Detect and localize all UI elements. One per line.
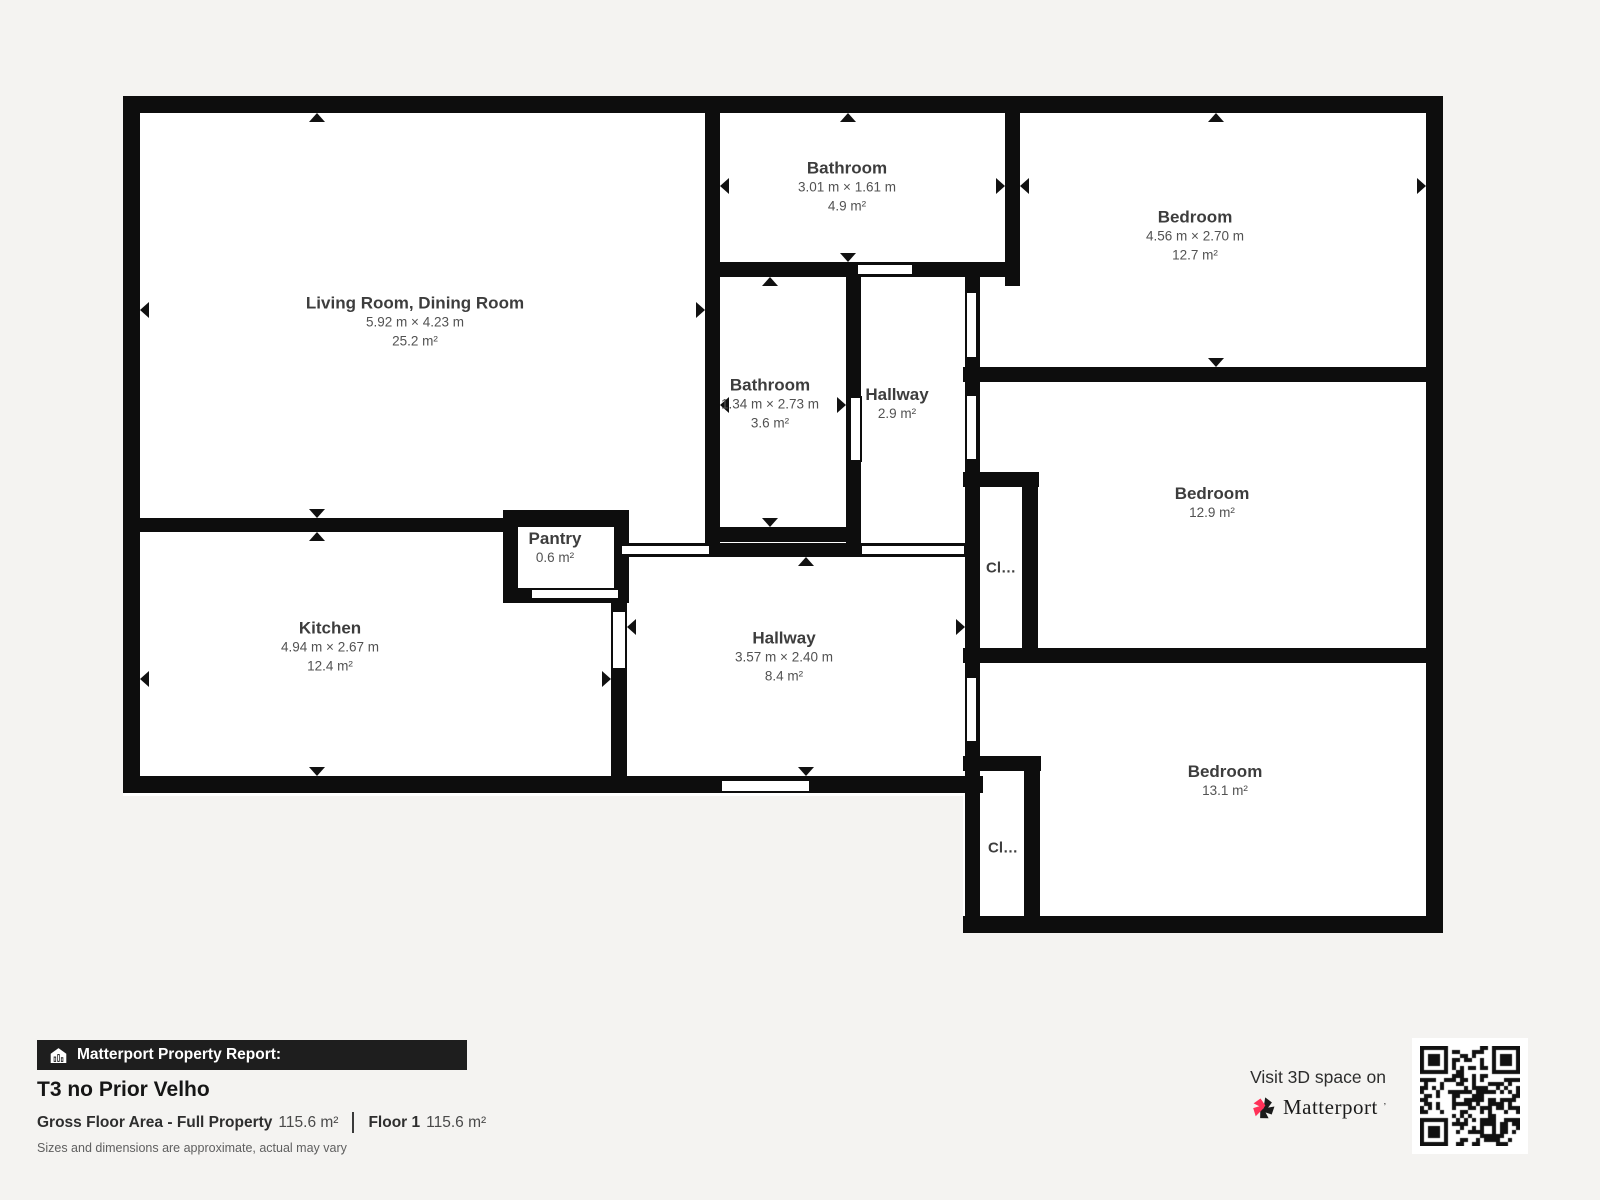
report-bar-title: Matterport Property Report: — [77, 1046, 281, 1064]
measure-arrow — [1417, 178, 1426, 194]
wall — [705, 527, 861, 542]
wall — [123, 96, 1443, 113]
measure-arrow — [602, 671, 611, 687]
room-area: 12.7 m² — [1146, 246, 1244, 265]
room-label-bedroom-top: Bedroom 4.56 m × 2.70 m 12.7 m² — [1146, 208, 1244, 265]
floor-value: 115.6 m² — [426, 1114, 486, 1132]
room-label-bedroom-bottom: Bedroom 13.1 m² — [1188, 762, 1263, 800]
room-area: 8.4 m² — [735, 667, 833, 686]
wall — [123, 518, 505, 532]
measure-arrow — [840, 113, 856, 122]
measure-arrow — [140, 302, 149, 318]
room-area: 4.9 m² — [798, 197, 896, 216]
measure-arrow — [627, 619, 636, 635]
room-area: 25.2 m² — [306, 332, 524, 351]
room-name: Kitchen — [281, 619, 379, 638]
floor-area-summary: Gross Floor Area - Full Property 115.6 m… — [37, 1112, 486, 1133]
room-area: 12.9 m² — [1175, 503, 1250, 522]
door-opening — [620, 544, 711, 556]
room-name: Bathroom — [798, 159, 896, 178]
door-opening — [965, 291, 978, 359]
room-name: Bedroom — [1175, 484, 1250, 503]
measure-arrow — [696, 302, 705, 318]
room-label-living: Living Room, Dining Room 5.92 m × 4.23 m… — [306, 294, 524, 351]
room-area: 2.9 m² — [865, 404, 928, 423]
room-area: 0.6 m² — [529, 548, 582, 567]
visit-3d-space-block: Visit 3D space on Matterport’ — [1238, 1066, 1398, 1121]
qr-code-card — [1412, 1038, 1528, 1154]
matterport-mark-icon — [1250, 1094, 1277, 1121]
divider — [352, 1112, 354, 1133]
gross-area-label: Gross Floor Area - Full Property — [37, 1114, 272, 1132]
room-name: Hallway — [865, 385, 928, 404]
wall — [1426, 96, 1443, 933]
room-dims: 3.01 m × 1.61 m — [798, 178, 896, 197]
door-opening — [720, 779, 811, 793]
door-opening — [849, 396, 862, 462]
floorplan-report-page: Living Room, Dining Room 5.92 m × 4.23 m… — [0, 0, 1600, 1200]
wall — [123, 96, 140, 793]
room-label-closet-upper: Cl… — [986, 560, 1016, 577]
wall — [1022, 472, 1038, 663]
room-dims: 4.94 m × 2.67 m — [281, 638, 379, 657]
room-name: Living Room, Dining Room — [306, 294, 524, 313]
door-opening — [965, 394, 978, 461]
door-opening — [965, 676, 978, 743]
house-chart-icon — [50, 1047, 67, 1064]
room-name: Bedroom — [1188, 762, 1263, 781]
room-label-pantry: Pantry 0.6 m² — [529, 529, 582, 567]
room-name: Pantry — [529, 529, 582, 548]
measure-arrow — [309, 532, 325, 541]
room-name: Bathroom — [721, 376, 819, 395]
room-label-kitchen: Kitchen 4.94 m × 2.67 m 12.4 m² — [281, 619, 379, 676]
door-opening — [860, 544, 966, 556]
gross-area-value: 115.6 m² — [278, 1114, 338, 1132]
measure-arrow — [309, 767, 325, 776]
measure-arrow — [762, 518, 778, 527]
disclaimer-text: Sizes and dimensions are approximate, ac… — [37, 1141, 347, 1155]
measure-arrow — [837, 397, 846, 413]
wall — [1024, 756, 1040, 933]
trademark-symbol: ’ — [1384, 1102, 1386, 1113]
room-name: Cl… — [988, 840, 1018, 857]
measure-arrow — [140, 671, 149, 687]
room-name: Bedroom — [1146, 208, 1244, 227]
qr-code — [1420, 1046, 1520, 1146]
room-label-hallway-small: Hallway 2.9 m² — [865, 385, 928, 423]
measure-arrow — [996, 178, 1005, 194]
measure-arrow — [1208, 358, 1224, 367]
wall — [963, 367, 1443, 382]
room-name: Cl… — [986, 560, 1016, 577]
measure-arrow — [720, 178, 729, 194]
room-area: 3.6 m² — [721, 414, 819, 433]
room-name: Hallway — [735, 629, 833, 648]
room-label-hallway-main: Hallway 3.57 m × 2.40 m 8.4 m² — [735, 629, 833, 686]
measure-arrow — [798, 557, 814, 566]
wall — [123, 776, 983, 793]
measure-arrow — [798, 767, 814, 776]
visit-3d-space-text: Visit 3D space on — [1238, 1066, 1398, 1088]
matterport-wordmark: Matterport — [1283, 1095, 1378, 1120]
room-area: 13.1 m² — [1188, 781, 1263, 800]
property-title: T3 no Prior Velho — [37, 1078, 210, 1102]
room-label-bathroom-mid: Bathroom 1.34 m × 2.73 m 3.6 m² — [721, 376, 819, 433]
room-area: 12.4 m² — [281, 657, 379, 676]
wall — [1005, 96, 1020, 286]
measure-arrow — [309, 509, 325, 518]
floor-label: Floor 1 — [368, 1114, 420, 1132]
room-dims: 5.92 m × 4.23 m — [306, 313, 524, 332]
measure-arrow — [762, 277, 778, 286]
matterport-logo: Matterport’ — [1238, 1094, 1398, 1121]
measure-arrow — [956, 619, 965, 635]
room-label-closet-lower: Cl… — [988, 840, 1018, 857]
room-dims: 3.57 m × 2.40 m — [735, 648, 833, 667]
measure-arrow — [1208, 113, 1224, 122]
room-dims: 4.56 m × 2.70 m — [1146, 227, 1244, 246]
report-header-bar: Matterport Property Report: — [37, 1040, 467, 1070]
measure-arrow — [840, 253, 856, 262]
room-label-bathroom-top: Bathroom 3.01 m × 1.61 m 4.9 m² — [798, 159, 896, 216]
door-opening — [611, 610, 627, 670]
room-label-bedroom-mid: Bedroom 12.9 m² — [1175, 484, 1250, 522]
measure-arrow — [309, 113, 325, 122]
door-opening — [530, 588, 620, 600]
wall — [965, 262, 980, 933]
room-dims: 1.34 m × 2.73 m — [721, 395, 819, 414]
measure-arrow — [1020, 178, 1029, 194]
wall — [705, 96, 720, 557]
door-opening — [856, 263, 914, 276]
